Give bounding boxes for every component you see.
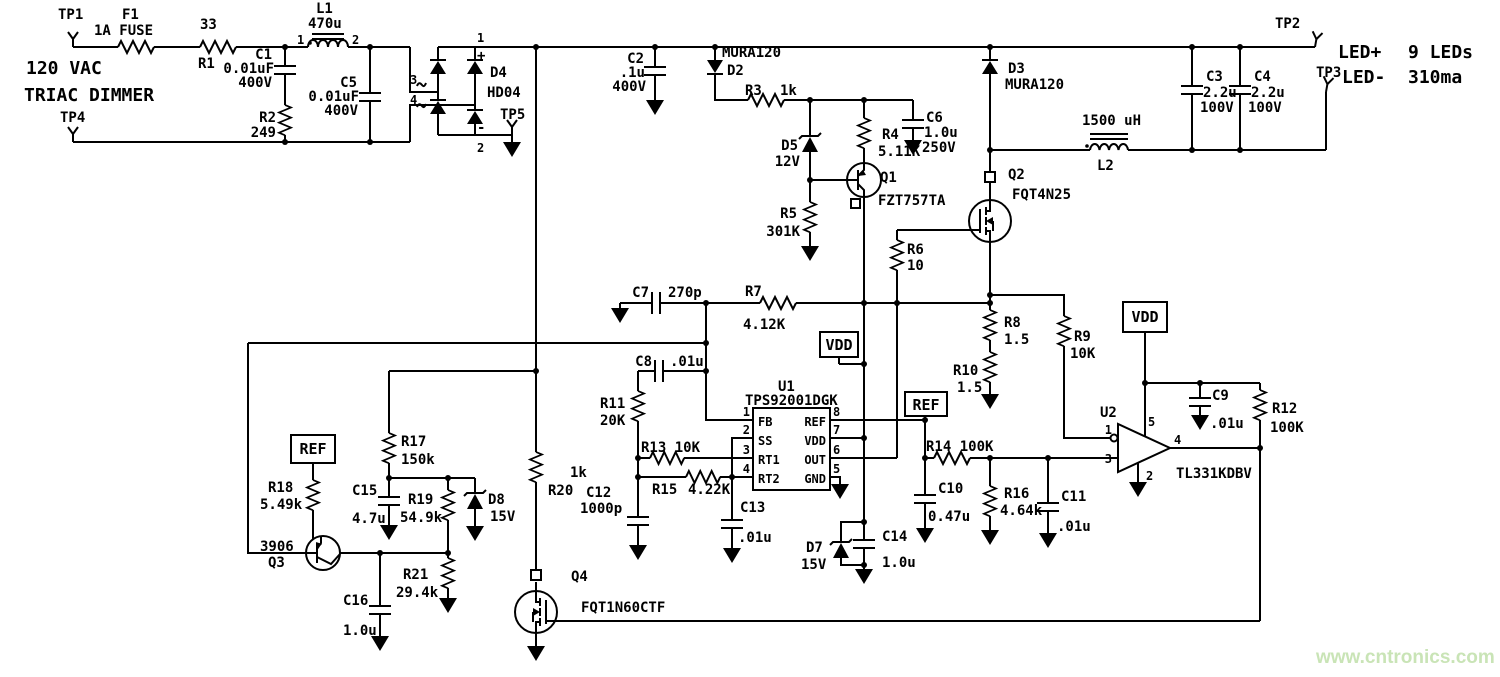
c15-value: 4.7u [352,511,386,527]
tp2-testpoint-icon [1310,31,1322,48]
r11-ref: R11 [600,396,625,412]
ground-icon [831,484,849,499]
capacitor-c9-icon [1189,398,1211,406]
tp5-label: TP5 [500,107,525,123]
c16-value: 1.0u [343,623,377,639]
ref-flag-label: REF [912,396,939,414]
c10-ref: C10 [938,481,963,497]
zener-d8-icon [464,490,486,509]
u1-pin1-num: 1 [743,405,750,419]
u1-pin-out: OUT [804,453,826,467]
resistor-r8-icon [984,310,996,340]
d4-ref: D4 [490,65,507,81]
transistor-q1-icon [847,163,881,197]
r15-value: 4.22K [688,482,731,498]
led-count-label: 9 LEDs [1408,42,1473,63]
ground-icon [723,548,741,563]
c3-value: 2.2u [1203,85,1237,101]
c7-ref: C7 [632,285,649,301]
resistor-r6-icon [891,240,903,270]
r20-value: 1k [570,465,587,481]
l1-value: 470u [308,16,342,32]
r17-value: 150k [401,452,435,468]
d4-minus: - [477,120,485,136]
r19-ref: R19 [408,492,433,508]
mosfet-q4-icon [515,591,557,633]
r4-ref: R4 [882,127,899,143]
c9-value: .01u [1210,416,1244,432]
u1-pin7-num: 7 [833,423,840,437]
capacitor-c8-icon [655,360,663,382]
u1-pin5-num: 5 [833,462,840,476]
resistor-r20-icon [530,452,542,482]
r21-ref: R21 [403,567,428,583]
q3-ref: Q3 [268,555,285,571]
l1-ref: L1 [316,1,333,17]
c13-value: .01u [738,530,772,546]
u1-part: TPS92001DGK [745,393,838,409]
c6-ref: C6 [926,110,943,126]
c10-value: 0.47u [928,509,970,525]
u1-pin-fb: FB [758,415,772,429]
r5-value: 301K [766,224,800,240]
r13-label: R13 10K [641,440,701,456]
f1-ref: F1 [122,7,139,23]
u2-pin3-num: 3 [1105,452,1112,466]
capacitor-c12-icon [627,517,649,525]
zener-d7-icon [830,539,852,558]
mosfet-q2-icon [969,200,1011,242]
resistor-r19-icon [442,490,454,520]
capacitor-c3-icon [1181,86,1203,94]
c4-volt: 100V [1248,100,1282,116]
tp1-label: TP1 [58,7,83,23]
u1-pin-ref: REF [804,415,826,429]
u1-pin3-num: 3 [743,443,750,457]
q2-pad-icon [985,172,995,182]
r8-ref: R8 [1004,315,1021,331]
tp3-label: TP3 [1316,65,1341,81]
d4-pin2: 2 [477,141,484,155]
d3-ref: D3 [1008,61,1025,77]
u1-pin4-num: 4 [743,462,750,476]
ground-icon [801,246,819,261]
u1-pin-ss: SS [758,434,772,448]
r9-ref: R9 [1074,329,1091,345]
d2-part: MURA120 [722,45,781,61]
u1-pin-rt1: RT1 [758,453,780,467]
ground-icon [981,530,999,545]
d8-ref: D8 [488,492,505,508]
d7-ref: D7 [806,540,823,556]
u2-pin1-num: 1 [1105,423,1112,437]
ground-icon [611,308,629,323]
source-label-1: 120 VAC [26,58,102,79]
resistor-r11-icon [632,391,644,421]
r12-value: 100K [1270,420,1304,436]
r1-value: 33 [200,17,217,33]
resistor-r18-icon [307,480,319,510]
q1-part: FZT757TA [878,193,946,209]
d7-value: 15V [801,557,827,573]
q4-pad-icon [531,570,541,580]
d5-ref: D5 [781,138,798,154]
c3-volt: 100V [1200,100,1234,116]
inductor-l2-icon [1085,134,1128,150]
capacitor-c7-icon [652,292,660,314]
r7-ref: R7 [745,284,762,300]
q1-ref: Q1 [880,170,897,186]
ground-icon [503,142,521,157]
c14-ref: C14 [882,529,907,545]
c7-value: 270p [668,285,702,301]
capacitor-c10-icon [914,495,936,503]
capacitor-c2-icon [644,67,666,75]
ground-icon [527,646,545,661]
ground-icon [1129,482,1147,497]
c6-volt: 250V [922,140,956,156]
f1-value: 1A FUSE [94,23,153,39]
r18-value: 5.49k [260,497,303,513]
c1-volt: 400V [238,75,272,91]
q4-ref: Q4 [571,569,588,585]
r12-ref: R12 [1272,401,1297,417]
u1-pin8-num: 8 [833,405,840,419]
u1-pin-vdd: VDD [804,434,826,448]
c6-value: 1.0u [924,125,958,141]
capacitor-c1-icon [274,66,296,74]
vdd-flag-label-2: VDD [1131,308,1158,326]
ground-icon [380,525,398,540]
circuit-schematic: TP1 TP4 120 VAC TRIAC DIMMER F1 1A FUSE … [0,0,1500,677]
capacitor-c14-icon [853,540,875,548]
r9-value: 10K [1070,346,1096,362]
led-plus-label: LED+ [1338,42,1382,63]
r5-ref: R5 [780,206,797,222]
c16-ref: C16 [343,593,368,609]
c4-ref: C4 [1254,69,1271,85]
d2-ref: D2 [727,63,744,79]
bridge-diode-icon [430,100,446,114]
q4-part: FQT1N60CTF [581,600,665,616]
u1-pin-rt2: RT2 [758,472,780,486]
bridge-diode-icon [430,60,446,74]
ref-flag-label-2: REF [299,440,326,458]
capacitor-c13-icon [721,520,743,528]
resistor-r7-icon [760,297,796,309]
l1-pin1: 1 [297,33,304,47]
r6-ref: R6 [907,242,924,258]
zener-d5-icon [799,133,821,152]
r2-ref: R2 [259,110,276,126]
resistor-r16-icon [984,486,996,516]
d8-value: 15V [490,509,516,525]
r8-value: 1.5 [1004,332,1029,348]
capacitor-c6-icon [902,120,924,128]
c9-ref: C9 [1212,388,1229,404]
d4-pin1: 1 [477,31,484,45]
r20-ref: R20 [548,483,573,499]
led-minus-label: LED- [1342,67,1385,88]
l1-pin2: 2 [352,33,359,47]
c12-ref: C12 [586,485,611,501]
c12-value: 1000p [580,501,622,517]
tp1-testpoint-icon [68,32,78,47]
l2-value: 1500 uH [1082,113,1141,129]
d4-pin3: 3 [410,73,417,87]
r17-ref: R17 [401,434,426,450]
r10-ref: R10 [953,363,978,379]
r3-value: 1k [780,83,797,99]
c3-ref: C3 [1206,69,1223,85]
ground-icon [1039,533,1057,548]
d3-part: MURA120 [1005,77,1064,93]
ground-icon [981,394,999,409]
tp2-label: TP2 [1275,16,1300,32]
u1-pin-gnd: GND [804,472,826,486]
u2-pin5-num: 5 [1148,415,1155,429]
c11-ref: C11 [1061,489,1086,505]
r2-value: 249 [251,125,276,141]
r18-ref: R18 [268,480,293,496]
r16-value: 4.64k [1000,503,1043,519]
ground-icon [646,100,664,115]
r10-value: 1.5 [957,380,982,396]
q2-ref: Q2 [1008,167,1025,183]
tp4-label: TP4 [60,110,85,126]
r3-ref: R3 [745,83,762,99]
d4-plus: + [477,48,485,64]
r21-value: 29.4k [396,585,439,601]
ground-icon [629,545,647,560]
tp4-testpoint-icon [68,127,78,142]
ground-icon [916,528,934,543]
c13-ref: C13 [740,500,765,516]
inductor-l1-icon [308,34,348,47]
r14-label: R14 100K [926,439,994,455]
resistor-r17-icon [383,433,395,463]
d4-part: HD04 [487,85,521,101]
r6-value: 10 [907,258,924,274]
r11-value: 20K [600,413,626,429]
ac-mark-icon [417,83,426,86]
c8-ref: C8 [635,354,652,370]
vdd-flag-label: VDD [825,336,852,354]
c5-volt: 400V [324,103,358,119]
watermark: www.cntronics.com [1315,647,1495,668]
u1-pin6-num: 6 [833,443,840,457]
resistor-r2-icon [279,105,291,135]
c14-value: 1.0u [882,555,916,571]
u2-pin4-num: 4 [1174,433,1181,447]
q2-part: FQT4N25 [1012,187,1071,203]
fuse-f1-icon [118,41,154,53]
c2-volt: 400V [612,79,646,95]
capacitor-c15-icon [378,497,400,505]
u2-part: TL331KDBV [1176,466,1252,482]
c8-value: .01u [670,354,704,370]
ground-icon [1191,415,1209,430]
r1-ref: R1 [198,56,215,72]
q3-part: 3906 [260,539,294,555]
ground-icon [466,526,484,541]
r19-value: 54.9k [400,510,443,526]
u1-pin2-num: 2 [743,423,750,437]
ground-icon [855,569,873,584]
c11-value: .01u [1057,519,1091,535]
capacitor-c5-icon [359,93,381,101]
transistor-q3-icon [306,536,340,570]
diode-d3-icon [982,60,998,74]
c15-ref: C15 [352,483,377,499]
resistor-r4-icon [858,118,870,148]
r7-value: 4.12K [743,317,786,333]
diode-d2-icon [707,60,723,74]
u2-pin2-num: 2 [1146,469,1153,483]
c4-value: 2.2u [1251,85,1285,101]
resistor-r5-icon [804,202,816,232]
capacitor-c16-icon [369,606,391,614]
ground-icon [439,598,457,613]
source-label-2: TRIAC DIMMER [24,85,154,106]
resistor-r21-icon [442,558,454,588]
resistor-r9-icon [1058,316,1070,346]
r16-ref: R16 [1004,486,1029,502]
d5-value: 12V [775,154,801,170]
led-current-label: 310ma [1408,67,1462,88]
resistor-r10-icon [984,352,996,382]
q1-pad-icon [851,199,860,208]
r15-ref: R15 [652,482,677,498]
u2-ref: U2 [1100,405,1117,421]
resistor-r12-icon [1254,390,1266,420]
resistor-r1-icon [200,41,236,53]
r4-value: 5.11K [878,144,921,160]
d4-pin4: 4 [410,93,417,107]
l2-ref: L2 [1097,158,1114,174]
